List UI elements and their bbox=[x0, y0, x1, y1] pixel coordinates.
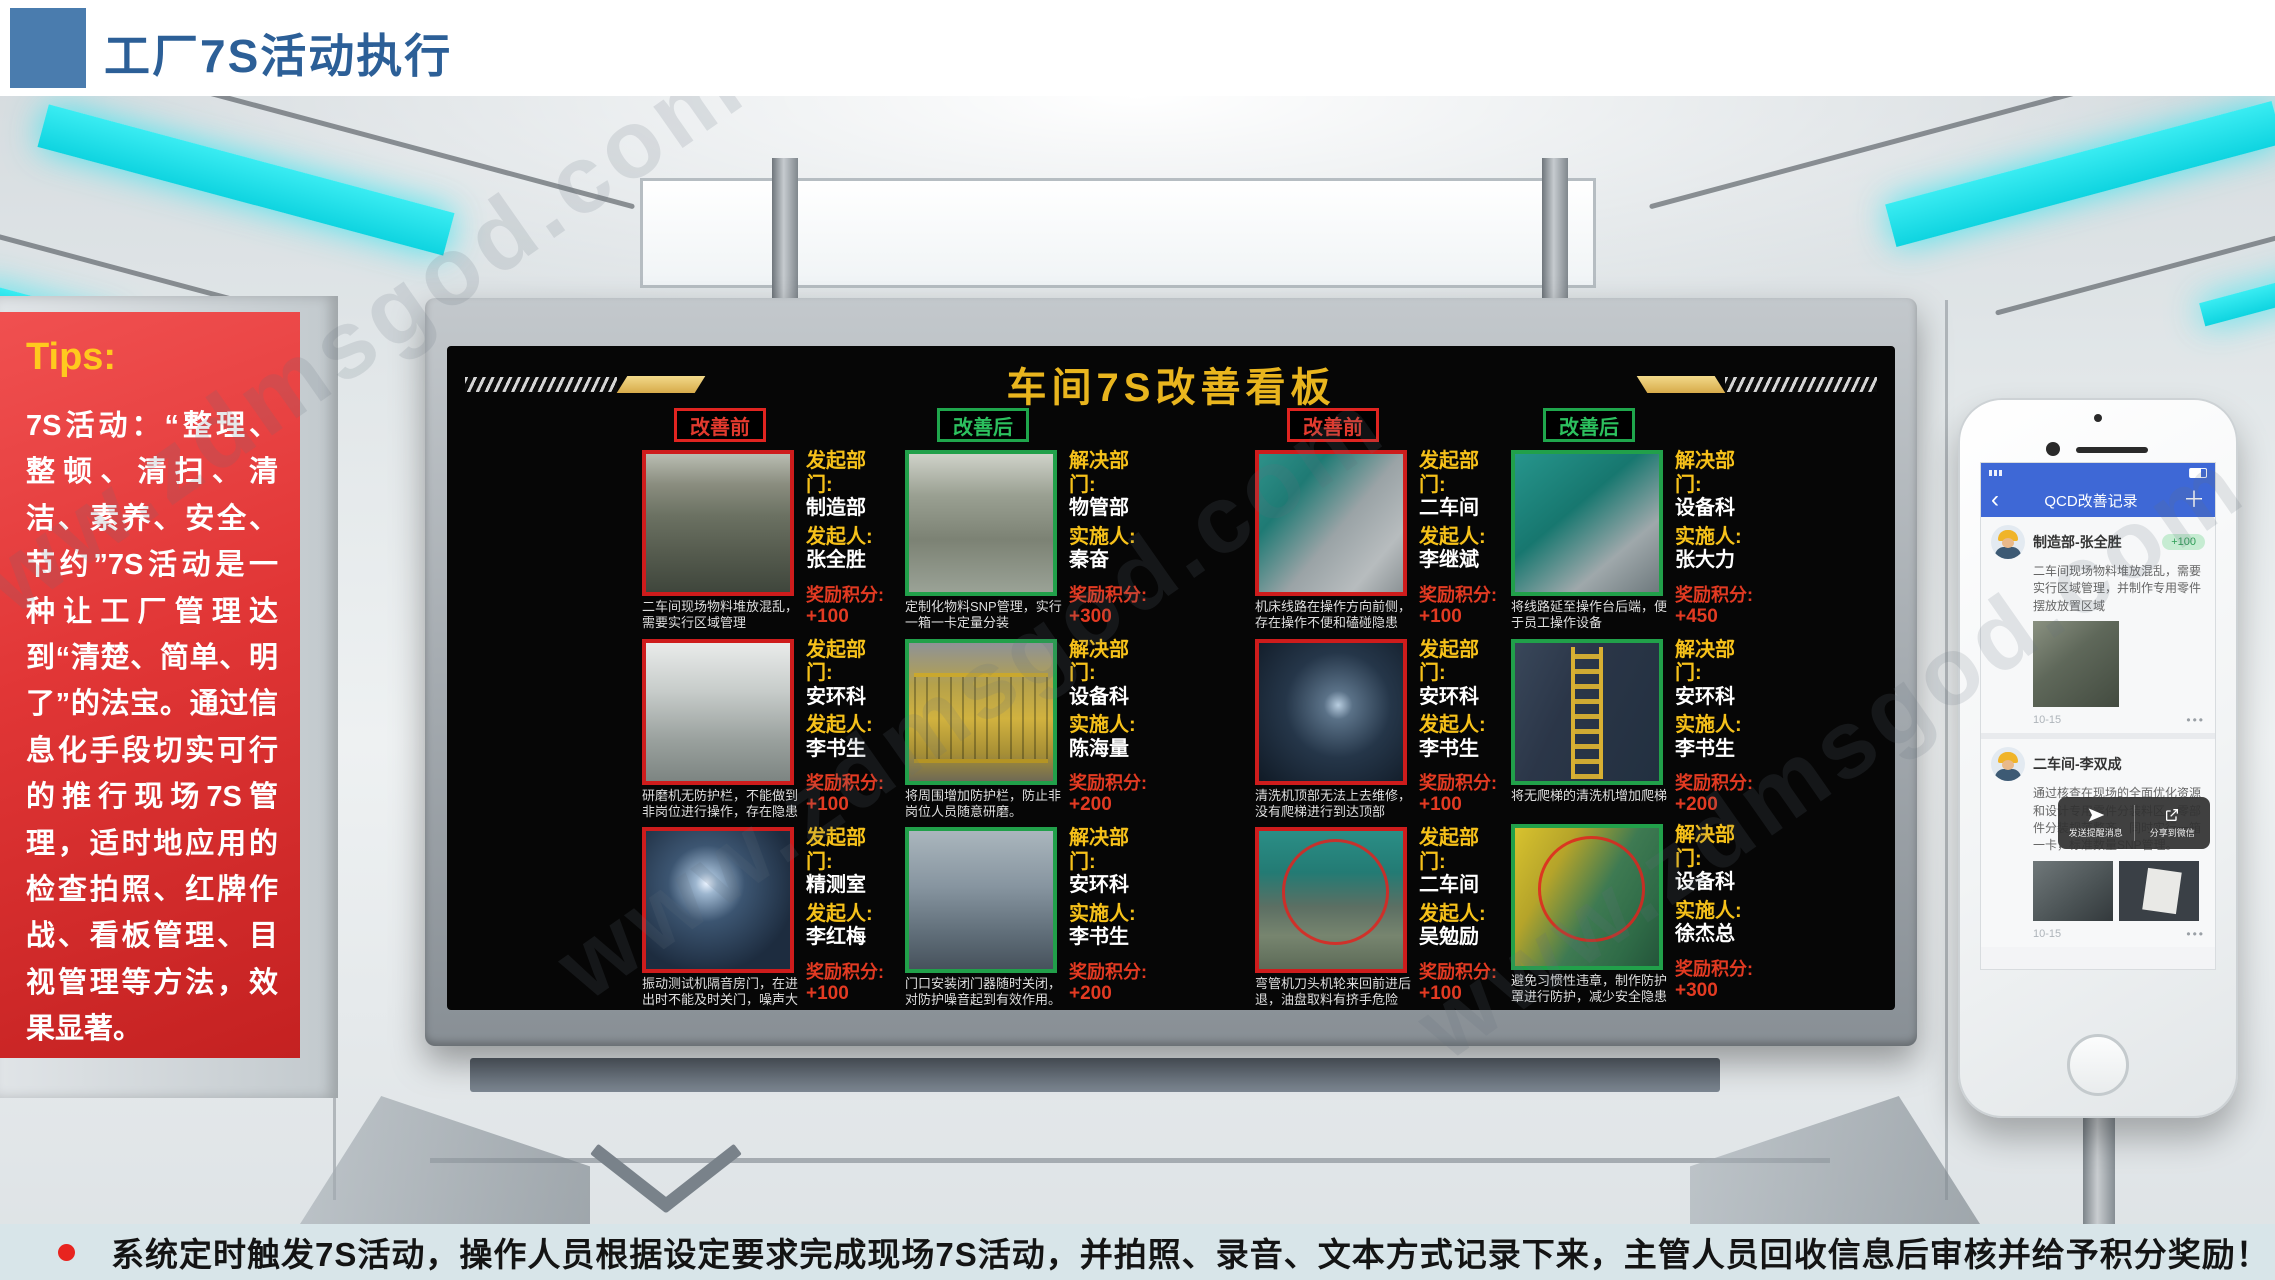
avatar bbox=[1991, 525, 2025, 559]
points-value: +100 bbox=[806, 794, 892, 817]
board-column-before-2: 改善前 机床线路在操作方向前侧，存在操作不便和磕碰隐患 发起部门: 二车间 发起… bbox=[1255, 408, 1505, 1016]
wall-corner-right bbox=[1690, 1096, 1980, 1224]
points-value: +200 bbox=[1675, 794, 1761, 817]
dept-label: 解决部门: bbox=[1069, 450, 1155, 497]
app-title: QCD改善记录 bbox=[1999, 490, 2183, 511]
person-value: 李书生 bbox=[806, 738, 892, 762]
feed-post[interactable]: 制造部-张全胜 +100 二车间现场物料堆放混乱，需要实行区域管理，并制作专用零… bbox=[1981, 517, 2215, 733]
person-value: 秦奋 bbox=[1069, 549, 1155, 573]
points-value: +100 bbox=[806, 983, 892, 1006]
camera-dot-icon bbox=[2094, 414, 2102, 422]
tips-panel: Tips: 7S活动：“整理、整顿、清扫、清洁、素养、安全、节约”7S活动是一种… bbox=[0, 312, 300, 1058]
board-header: 车间7S改善看板 bbox=[447, 346, 1895, 408]
board-entry: 研磨机无防护栏，不能做到非岗位进行操作，存在隐患 发起部门: 安环科 发起人: … bbox=[642, 639, 892, 821]
points-label: 奖励积分: bbox=[806, 585, 892, 606]
dept-label: 发起部门: bbox=[1419, 450, 1505, 497]
person-label: 实施人: bbox=[1069, 903, 1155, 927]
person-label: 实施人: bbox=[1675, 900, 1761, 924]
page-title: 工厂7S活动执行 bbox=[104, 20, 452, 86]
footer-bar: 系统定时触发7S活动，操作人员根据设定要求完成现场7S活动，并拍照、录音、文本方… bbox=[0, 1224, 2275, 1280]
phone-stand-pole bbox=[2083, 1110, 2115, 1226]
board-entry: 二车间现场物料堆放混乱，需要实行区域管理 发起部门: 制造部 发起人: 张全胜 … bbox=[642, 450, 892, 632]
after-photo bbox=[1511, 639, 1663, 785]
send-reminder-button[interactable]: 发送提醒消息 bbox=[2058, 797, 2134, 849]
dept-value: 安环科 bbox=[1675, 686, 1761, 710]
board-entry: 避免习惯性违章，制作防护罩进行防护，减少安全隐患 解决部门: 设备科 实施人: … bbox=[1511, 824, 1761, 1006]
person-value: 吴勉励 bbox=[1419, 926, 1505, 950]
photo-caption: 研磨机无防护栏，不能做到非岗位进行操作，存在隐患 bbox=[642, 788, 802, 821]
board-mount-pole-right bbox=[1542, 158, 1568, 312]
person-value: 李书生 bbox=[1675, 738, 1761, 762]
share-icon bbox=[2164, 807, 2180, 823]
points-value: +200 bbox=[1069, 983, 1155, 1006]
points-value: +100 bbox=[1419, 983, 1505, 1006]
dept-label: 解决部门: bbox=[1675, 639, 1761, 686]
tips-text: “整理、整顿、清扫、清洁、素养、安全、节约”7S活动是一种让工厂管理达到“清楚、… bbox=[26, 410, 278, 1045]
photo-caption: 振动测试机隔音房门，在进出时不能及时关门，噪声大 bbox=[642, 976, 802, 1009]
post-photo[interactable] bbox=[2033, 861, 2113, 921]
board-column-after-1: 改善后 定制化物料SNP管理，实行一箱一卡定量分装 解决部门: 物管部 实施人:… bbox=[905, 408, 1155, 1016]
after-photo bbox=[905, 639, 1057, 785]
slide-header: 工厂7S活动执行 bbox=[0, 0, 2275, 96]
before-photo bbox=[642, 450, 794, 596]
title-accent-square bbox=[10, 8, 86, 88]
board-grid: 改善前 二车间现场物料堆放混乱，需要实行区域管理 发起部门: 制造部 发起人: … bbox=[642, 408, 1812, 1016]
person-value: 张大力 bbox=[1675, 549, 1761, 573]
photo-caption: 门口安装闭门器随时关闭，对防护噪音起到有效作用。 bbox=[905, 976, 1065, 1009]
photo-caption: 弯管机刀头机轮来回前进后退，油盘取料有挤手危险 bbox=[1255, 976, 1415, 1009]
board-entry: 将线路延至操作台后端，便于员工操作设备 解决部门: 设备科 实施人: 张大力 奖… bbox=[1511, 450, 1761, 632]
app-nav-bar: ‹ QCD改善记录 ＋ bbox=[1981, 483, 2215, 517]
points-value: +300 bbox=[1069, 606, 1155, 629]
person-value: 张全胜 bbox=[806, 549, 892, 573]
speaker-slot bbox=[2076, 447, 2148, 453]
person-value: 陈海量 bbox=[1069, 738, 1155, 762]
person-value: 李书生 bbox=[1419, 738, 1505, 762]
dept-label: 解决部门: bbox=[1675, 450, 1761, 497]
points-value: +200 bbox=[1069, 794, 1155, 817]
person-label: 实施人: bbox=[1069, 526, 1155, 550]
board-column-after-2: 改善后 将线路延至操作台后端，便于员工操作设备 解决部门: 设备科 实施人: 张… bbox=[1511, 408, 1761, 1016]
photo-caption: 清洗机顶部无法上去维修，没有爬梯进行到达顶部 bbox=[1255, 788, 1415, 821]
more-button[interactable]: ••• bbox=[2186, 927, 2205, 941]
points-label: 奖励积分: bbox=[1069, 585, 1155, 606]
front-camera-icon bbox=[2046, 442, 2060, 456]
points-label: 奖励积分: bbox=[1069, 773, 1155, 794]
tips-label: Tips: bbox=[26, 336, 278, 379]
photo-caption: 二车间现场物料堆放混乱，需要实行区域管理 bbox=[642, 599, 802, 632]
points-badge: +100 bbox=[2162, 534, 2205, 550]
points-label: 奖励积分: bbox=[1419, 773, 1505, 794]
person-label: 发起人: bbox=[806, 714, 892, 738]
battery-icon bbox=[2189, 468, 2207, 478]
board-title: 车间7S改善看板 bbox=[700, 355, 1642, 413]
board-mount-pole-left bbox=[772, 158, 798, 312]
dept-value: 设备科 bbox=[1675, 497, 1761, 521]
wall-rail bbox=[470, 1058, 1720, 1092]
after-photo bbox=[905, 450, 1057, 596]
dept-label: 发起部门: bbox=[1419, 639, 1505, 686]
photo-caption: 将周围增加防护栏，防止非岗位人员随意研磨。 bbox=[905, 788, 1065, 821]
footer-text: 系统定时触发7S活动，操作人员根据设定要求完成现场7S活动，并拍照、录音、文本方… bbox=[111, 1228, 2270, 1276]
dept-value: 二车间 bbox=[1419, 874, 1505, 898]
before-photo bbox=[1255, 639, 1407, 785]
tips-lead: 7S活动： bbox=[26, 410, 164, 442]
board-entry: 机床线路在操作方向前侧，存在操作不便和磕碰隐患 发起部门: 二车间 发起人: 李… bbox=[1255, 450, 1505, 632]
before-photo bbox=[1255, 450, 1407, 596]
share-wechat-button[interactable]: 分享到微信 bbox=[2135, 797, 2211, 849]
dept-label: 解决部门: bbox=[1069, 639, 1155, 686]
avatar bbox=[1991, 747, 2025, 781]
phone-screen: ‹ QCD改善记录 ＋ 制造部-张全胜 +100 二车间现场物料堆放混乱，需要实… bbox=[1980, 462, 2216, 970]
points-value: +100 bbox=[806, 606, 892, 629]
person-value: 李继斌 bbox=[1419, 549, 1505, 573]
after-photo bbox=[905, 827, 1057, 973]
board-entry: 清洗机顶部无法上去维修，没有爬梯进行到达顶部 发起部门: 安环科 发起人: 李书… bbox=[1255, 639, 1505, 821]
points-label: 奖励积分: bbox=[1675, 959, 1761, 980]
dept-label: 解决部门: bbox=[1069, 827, 1155, 874]
post-photo[interactable] bbox=[2033, 621, 2119, 707]
dept-value: 安环科 bbox=[1069, 874, 1155, 898]
photo-caption: 机床线路在操作方向前侧，存在操作不便和磕碰隐患 bbox=[1255, 599, 1415, 632]
signal-icon bbox=[1989, 470, 2002, 476]
dept-label: 解决部门: bbox=[1675, 824, 1761, 871]
action-popup: 发送提醒消息 分享到微信 bbox=[2058, 797, 2210, 849]
badge-before: 改善前 bbox=[1287, 408, 1379, 442]
dept-label: 发起部门: bbox=[806, 450, 892, 497]
board-entry: 门口安装闭门器随时关闭，对防护噪音起到有效作用。 解决部门: 安环科 实施人: … bbox=[905, 827, 1155, 1009]
dept-value: 安环科 bbox=[806, 686, 892, 710]
person-label: 发起人: bbox=[1419, 526, 1505, 550]
person-value: 李红梅 bbox=[806, 926, 892, 950]
points-value: +450 bbox=[1675, 606, 1761, 629]
status-bar bbox=[1981, 463, 2215, 483]
post-author: 制造部-张全胜 bbox=[2033, 532, 2122, 552]
photo-caption: 将无爬梯的清洗机增加爬梯 bbox=[1511, 788, 1671, 804]
post-photo[interactable] bbox=[2119, 861, 2199, 921]
person-label: 发起人: bbox=[1419, 714, 1505, 738]
dept-label: 发起部门: bbox=[1419, 827, 1505, 874]
badge-before: 改善前 bbox=[674, 408, 766, 442]
person-label: 实施人: bbox=[1069, 714, 1155, 738]
deco-bar-left bbox=[465, 374, 700, 394]
after-photo bbox=[1511, 450, 1663, 596]
photo-caption: 避免习惯性违章，制作防护罩进行防护，减少安全隐患 bbox=[1511, 973, 1671, 1006]
deco-bar-right bbox=[1642, 374, 1877, 394]
points-label: 奖励积分: bbox=[1675, 773, 1761, 794]
board-entry: 将无爬梯的清洗机增加爬梯 解决部门: 安环科 实施人: 李书生 奖励积分: +2… bbox=[1511, 639, 1761, 817]
person-label: 实施人: bbox=[1675, 714, 1761, 738]
person-label: 发起人: bbox=[1419, 903, 1505, 927]
board-entry: 将周围增加防护栏，防止非岗位人员随意研磨。 解决部门: 设备科 实施人: 陈海量… bbox=[905, 639, 1155, 821]
badge-after: 改善后 bbox=[937, 408, 1029, 442]
photo-caption: 定制化物料SNP管理，实行一箱一卡定量分装 bbox=[905, 599, 1065, 632]
points-value: +300 bbox=[1675, 980, 1761, 1003]
points-label: 奖励积分: bbox=[806, 962, 892, 983]
person-value: 徐杰总 bbox=[1675, 923, 1761, 947]
points-label: 奖励积分: bbox=[1675, 585, 1761, 606]
kanban-screen: 车间7S改善看板 改善前 二车间现场物料堆放混乱，需要实行区域管理 发起部门: … bbox=[447, 346, 1895, 1010]
after-photo bbox=[1511, 824, 1663, 970]
post-author: 二车间-李双成 bbox=[2033, 754, 2122, 774]
back-chevron-icon[interactable]: ‹ bbox=[1991, 488, 1999, 512]
wall-corner-left bbox=[300, 1096, 590, 1224]
points-label: 奖励积分: bbox=[1069, 962, 1155, 983]
board-entry: 振动测试机隔音房门，在进出时不能及时关门，噪声大 发起部门: 精测室 发起人: … bbox=[642, 827, 892, 1009]
more-button[interactable]: ••• bbox=[2186, 713, 2205, 727]
board-column-before-1: 改善前 二车间现场物料堆放混乱，需要实行区域管理 发起部门: 制造部 发起人: … bbox=[642, 408, 892, 1016]
phone-mockup: ‹ QCD改善记录 ＋ 制造部-张全胜 +100 二车间现场物料堆放混乱，需要实… bbox=[1958, 398, 2238, 1118]
dept-value: 设备科 bbox=[1675, 871, 1761, 895]
floor-chevron bbox=[658, 1144, 742, 1213]
wall-seam-right bbox=[1945, 300, 1948, 1200]
points-label: 奖励积分: bbox=[1419, 585, 1505, 606]
bullet-icon bbox=[58, 1244, 75, 1261]
badge-after: 改善后 bbox=[1543, 408, 1635, 442]
person-value: 李书生 bbox=[1069, 926, 1155, 950]
before-photo bbox=[642, 639, 794, 785]
points-value: +100 bbox=[1419, 794, 1505, 817]
tips-body: 7S活动：“整理、整顿、清扫、清洁、素养、安全、节约”7S活动是一种让工厂管理达… bbox=[26, 403, 278, 1052]
floor-line bbox=[430, 1158, 1830, 1163]
person-label: 发起人: bbox=[806, 526, 892, 550]
dept-value: 物管部 bbox=[1069, 497, 1155, 521]
dept-value: 二车间 bbox=[1419, 497, 1505, 521]
slide: 工厂7S活动执行 Tips: 7S活动：“整理、整顿、清扫、清洁、素养、安全、节… bbox=[0, 0, 2275, 1280]
dept-label: 发起部门: bbox=[806, 827, 892, 874]
points-value: +100 bbox=[1419, 606, 1505, 629]
dept-value: 精测室 bbox=[806, 874, 892, 898]
dept-value: 制造部 bbox=[806, 497, 892, 521]
board-entry: 弯管机刀头机轮来回前进后退，油盘取料有挤手危险 发起部门: 二车间 发起人: 吴… bbox=[1255, 827, 1505, 1009]
points-label: 奖励积分: bbox=[1419, 962, 1505, 983]
photo-caption: 将线路延至操作台后端，便于员工操作设备 bbox=[1511, 599, 1671, 632]
post-time: 10-15 bbox=[2033, 928, 2061, 940]
paper-plane-icon bbox=[2088, 807, 2104, 823]
person-label: 发起人: bbox=[806, 903, 892, 927]
post-body: 二车间现场物料堆放混乱，需要实行区域管理，并制作专用零件摆放放置区域 bbox=[2033, 563, 2205, 615]
dept-label: 发起部门: bbox=[806, 639, 892, 686]
dept-value: 安环科 bbox=[1419, 686, 1505, 710]
add-button[interactable]: ＋ bbox=[2183, 489, 2205, 511]
before-photo bbox=[1255, 827, 1407, 973]
post-time: 10-15 bbox=[2033, 714, 2061, 726]
board-entry: 定制化物料SNP管理，实行一箱一卡定量分装 解决部门: 物管部 实施人: 秦奋 … bbox=[905, 450, 1155, 632]
home-button[interactable] bbox=[2067, 1034, 2129, 1096]
dept-value: 设备科 bbox=[1069, 686, 1155, 710]
before-photo bbox=[642, 827, 794, 973]
points-label: 奖励积分: bbox=[806, 773, 892, 794]
person-label: 实施人: bbox=[1675, 526, 1761, 550]
